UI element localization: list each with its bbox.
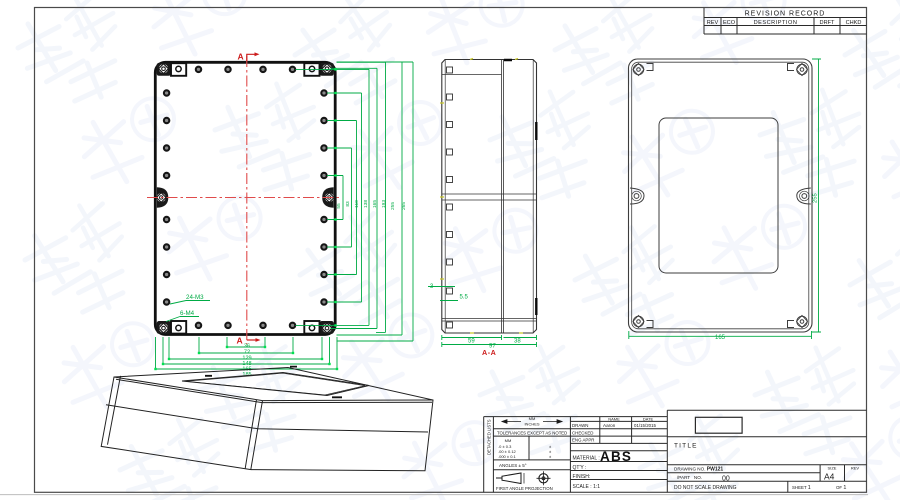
svg-text:±: ± [549,454,552,459]
svg-text:A: A [238,52,244,62]
svg-text:193: 193 [381,200,387,208]
svg-text:MM: MM [529,416,536,421]
svg-text:ABS: ABS [600,449,632,464]
svg-text:255: 255 [813,193,819,203]
svg-text:A-A: A-A [482,348,496,357]
svg-text:00: 00 [722,475,730,482]
svg-text:INCHES: INCHES [524,422,539,427]
svg-text:165: 165 [372,200,378,208]
svg-text:TITLE: TITLE [674,443,698,450]
svg-text:83: 83 [345,201,351,207]
svg-text:DRFT: DRFT [820,20,835,26]
svg-text:SHEET 1: SHEET 1 [792,485,811,491]
svg-text:SIZE: SIZE [828,466,837,471]
svg-text:MM: MM [505,438,512,443]
svg-text:DRAWN: DRAWN [572,423,588,428]
svg-text:A4: A4 [824,471,835,481]
svg-text:DETACHED LISTS: DETACHED LISTS [487,419,492,455]
svg-text:138: 138 [363,200,369,208]
svg-text:REV: REV [851,466,860,471]
svg-text:DESCRIPTION: DESCRIPTION [754,20,798,26]
svg-text:38: 38 [514,339,521,345]
svg-text:265: 265 [401,202,407,210]
svg-text:FINISH:: FINISH: [573,474,591,480]
svg-text:MATERIAL :: MATERIAL : [573,456,600,462]
svg-text:.000 ± 0.1: .000 ± 0.1 [498,454,517,459]
svg-text:ECO: ECO [723,20,736,26]
svg-text:CHECKED: CHECKED [572,430,593,435]
svg-text:DATE: DATE [643,417,654,422]
svg-text:SCALE : 1:1: SCALE : 1:1 [573,484,601,490]
svg-text:3: 3 [430,284,434,290]
svg-text:/PART NO.: /PART NO. [677,475,702,480]
svg-text:DO NOT SCALE DRAWING: DO NOT SCALE DRAWING [674,485,737,491]
svg-text:NAME: NAME [608,417,620,422]
svg-text:55: 55 [336,203,342,209]
svg-text:REVISION RECORD: REVISION RECORD [745,11,826,18]
svg-text:QT'Y :: QT'Y : [573,465,587,471]
svg-text:24-M3: 24-M3 [186,294,204,301]
svg-text:01/15/2015: 01/15/2015 [634,423,657,428]
svg-text:ANGLES ± 5°: ANGLES ± 5° [499,463,527,468]
svg-text:CHKD: CHKD [846,20,862,26]
svg-text:Aaron: Aaron [603,423,616,428]
svg-text:110: 110 [354,200,360,208]
svg-text:5.5: 5.5 [460,295,469,301]
svg-text:TOLERANCES EXCEPT AS NOTED: TOLERANCES EXCEPT AS NOTED [497,431,567,436]
svg-text:6-M4: 6-M4 [180,310,195,317]
svg-text:255: 255 [390,202,396,210]
svg-text:ENG APPR: ENG APPR [572,438,594,443]
svg-text:FIRST ANGLE PROJECTION: FIRST ANGLE PROJECTION [496,486,553,491]
svg-text:59: 59 [468,339,475,345]
svg-text:REV: REV [707,20,719,26]
svg-text:165: 165 [715,335,726,341]
svg-text:OF 1: OF 1 [836,485,846,491]
svg-text:A: A [237,336,243,346]
